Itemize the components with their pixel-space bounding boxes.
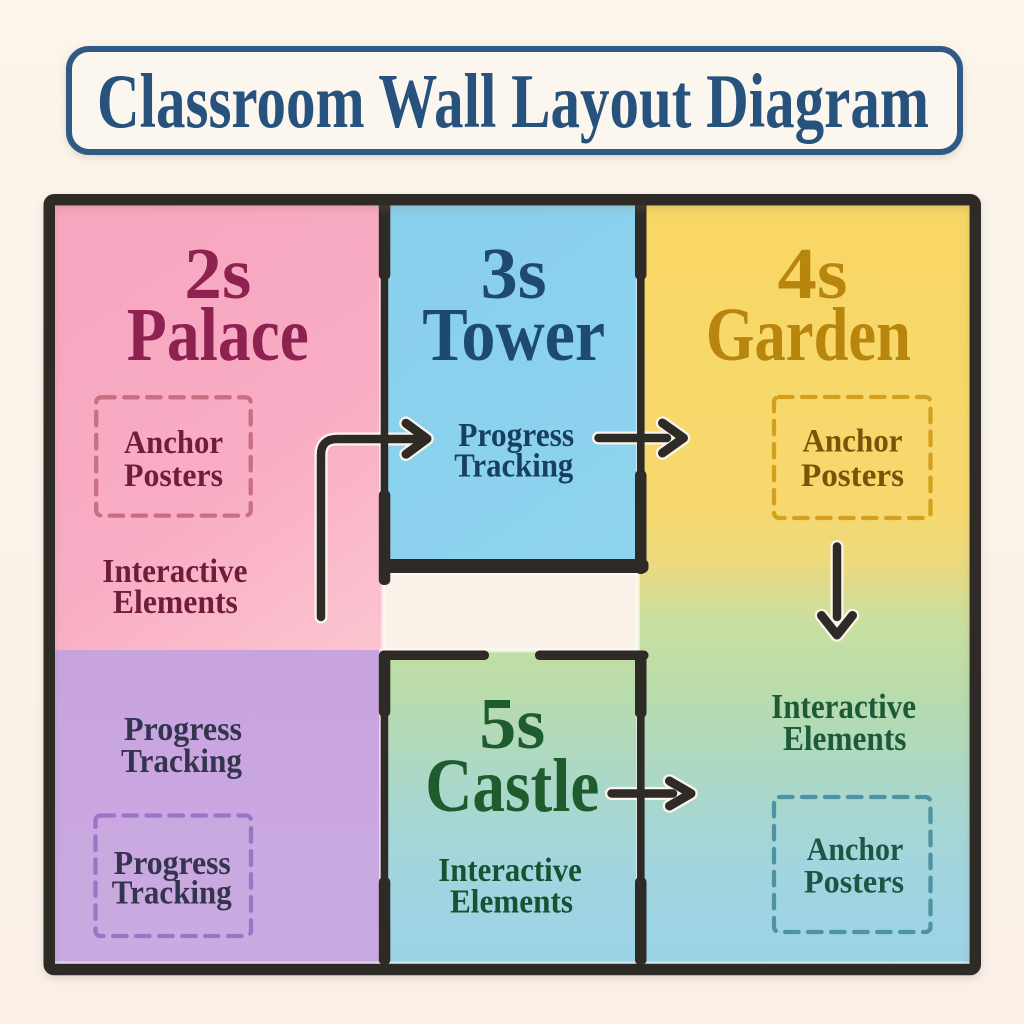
svg-text:Garden: Garden [706,293,911,377]
svg-text:Castle: Castle [425,744,599,828]
svg-text:Anchor: Anchor [124,425,223,461]
svg-text:Posters: Posters [804,864,904,900]
svg-text:Elements: Elements [450,883,573,920]
svg-text:Tracking: Tracking [112,875,232,912]
svg-text:Tracking: Tracking [454,447,573,484]
svg-text:Posters: Posters [124,458,223,494]
svg-text:Anchor: Anchor [807,832,904,868]
svg-text:Elements: Elements [113,584,238,621]
svg-text:Palace: Palace [127,293,309,377]
svg-text:Anchor: Anchor [803,423,903,459]
svg-text:Elements: Elements [783,719,907,758]
svg-text:Posters: Posters [801,458,904,494]
svg-text:Tracking: Tracking [121,743,242,780]
svg-text:Classroom Wall Layout Diagram: Classroom Wall Layout Diagram [97,58,929,144]
svg-text:Tower: Tower [422,293,605,377]
